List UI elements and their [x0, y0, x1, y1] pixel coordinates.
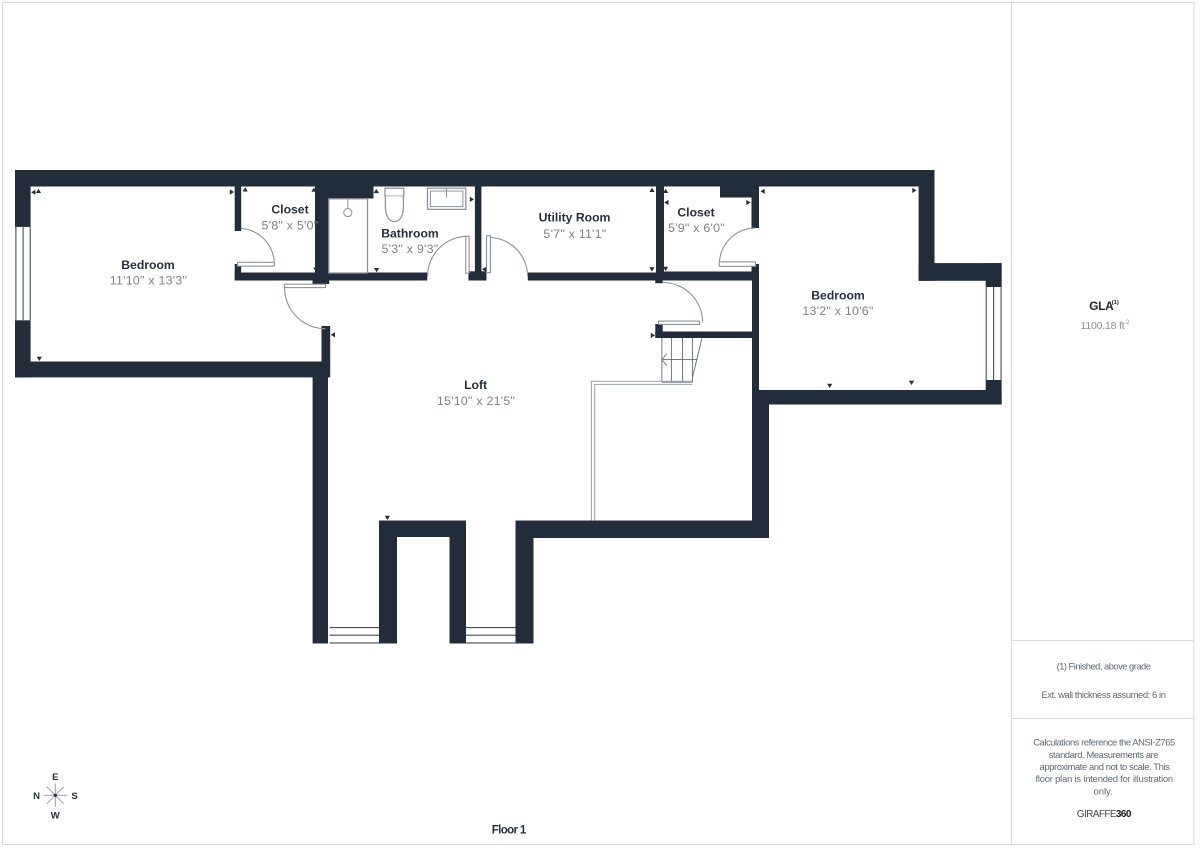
svg-text:Bedroom: Bedroom: [811, 289, 865, 303]
svg-text:GIRAFFE360: GIRAFFE360: [1077, 809, 1132, 820]
svg-text:(1): (1): [1112, 300, 1119, 306]
svg-text:GLA: GLA: [1089, 299, 1114, 313]
svg-text:standard. Measurements are: standard. Measurements are: [1049, 749, 1159, 760]
svg-text:Calculations reference the ANS: Calculations reference the ANSI-Z765: [1033, 737, 1175, 748]
svg-text:Bedroom: Bedroom: [121, 258, 175, 272]
svg-text:E: E: [52, 772, 58, 783]
svg-text:Closet: Closet: [271, 203, 308, 217]
svg-text:13'2" x 10'6": 13'2" x 10'6": [802, 304, 873, 318]
svg-text:Floor 1: Floor 1: [492, 824, 527, 836]
svg-text:15'10" x 21'5": 15'10" x 21'5": [437, 394, 515, 408]
svg-text:N: N: [33, 791, 40, 802]
svg-text:5'3" x 9'3": 5'3" x 9'3": [382, 242, 439, 256]
svg-text:Utility Room: Utility Room: [539, 211, 611, 225]
svg-text:Ext. wall thickness assumed: 6: Ext. wall thickness assumed: 6 in: [1041, 689, 1165, 700]
svg-text:approximate and not to scale.: approximate and not to scale. This: [1040, 761, 1171, 772]
svg-text:11'10" x 13'3": 11'10" x 13'3": [110, 274, 187, 288]
svg-text:W: W: [51, 810, 60, 821]
svg-text:5'8" x 5'0": 5'8" x 5'0": [262, 219, 319, 233]
svg-text:2: 2: [1126, 319, 1130, 326]
svg-text:5'7" x 11'1": 5'7" x 11'1": [543, 227, 606, 241]
svg-text:Bathroom: Bathroom: [381, 226, 439, 240]
svg-text:5'9" x 6'0": 5'9" x 6'0": [668, 221, 725, 235]
svg-text:(1) Finished, above grade: (1) Finished, above grade: [1057, 660, 1151, 671]
svg-text:Loft: Loft: [464, 378, 487, 392]
svg-text:only.: only.: [1094, 785, 1113, 796]
svg-text:1100.18 ft: 1100.18 ft: [1081, 320, 1125, 332]
svg-text:S: S: [71, 791, 77, 802]
svg-text:floor plan is intended for ill: floor plan is intended for illustration: [1035, 773, 1172, 784]
svg-text:Closet: Closet: [677, 206, 714, 220]
